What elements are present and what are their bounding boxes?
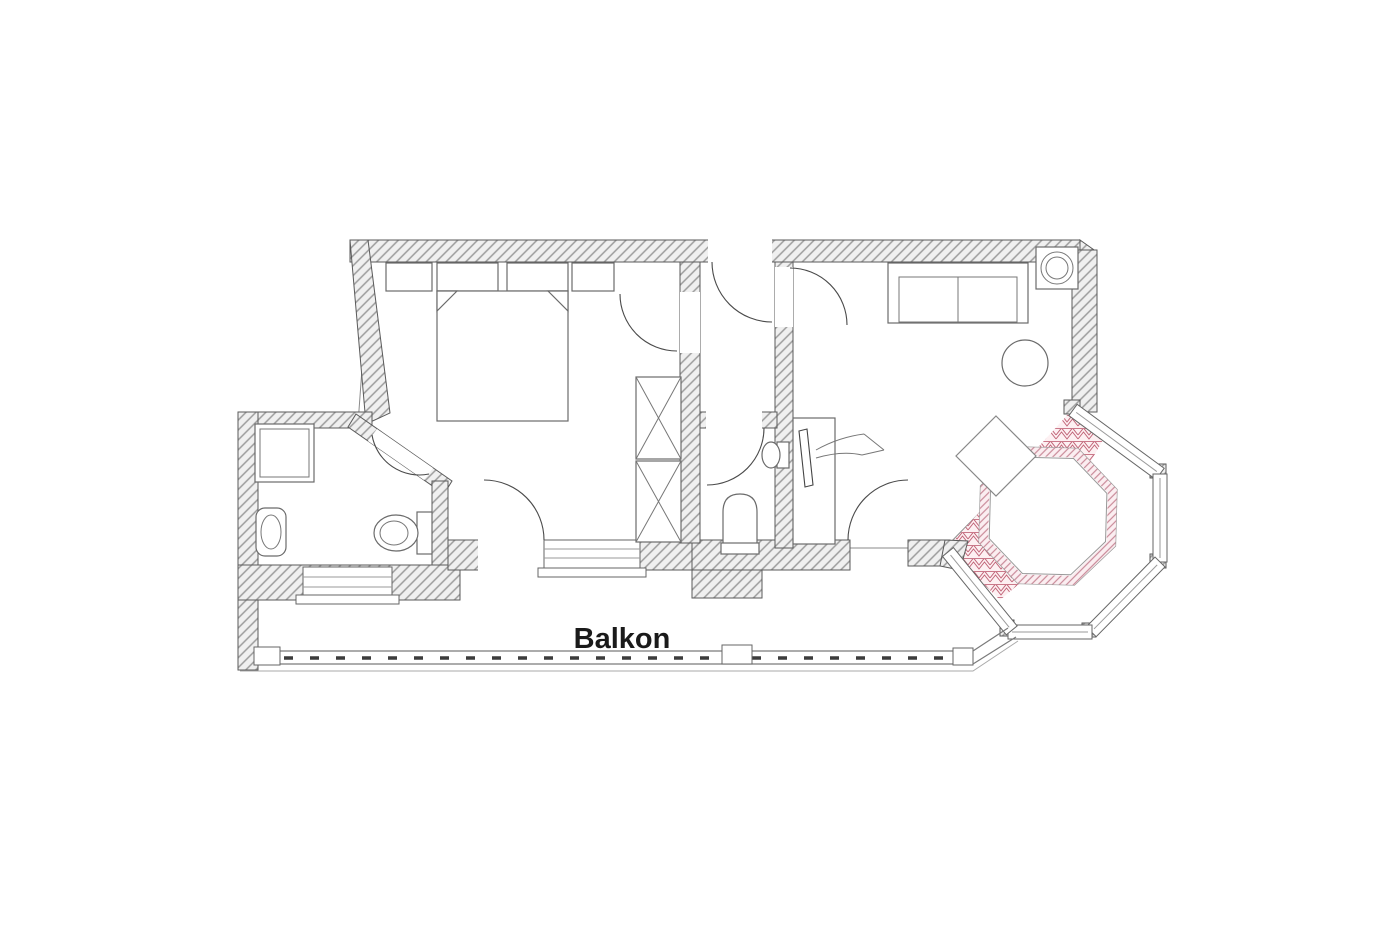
round-table [1002, 340, 1048, 386]
bathroom-toilet [374, 512, 432, 554]
nightstand-right [572, 263, 614, 291]
wc-toilet [721, 494, 759, 554]
balcony: Balkon [240, 623, 1018, 671]
pillow-left [437, 263, 498, 291]
pillow-right [507, 263, 568, 291]
railing-post-left [254, 647, 280, 665]
double-bed [437, 291, 568, 421]
door-arc-living [790, 268, 847, 325]
bathroom-window [296, 567, 399, 604]
door-arc-entrance [712, 262, 772, 322]
railing-post-right [953, 648, 973, 665]
bathroom-furniture [255, 424, 432, 556]
door-arc-living-balcony [848, 480, 908, 540]
railing-diag-2 [973, 637, 1016, 664]
wall-south-notch [692, 570, 762, 598]
railing-diag-1 [973, 628, 1008, 651]
balcony-label: Balkon [574, 623, 671, 655]
railing-post-mid [722, 645, 752, 664]
door-arc-bedroom [620, 294, 677, 351]
tv-unit [793, 418, 884, 544]
nightstand-left [386, 263, 432, 291]
opening-bedroom-balcony [478, 538, 546, 572]
corner-column [1036, 247, 1078, 289]
floor-plan: Balkon [0, 0, 1400, 933]
shower [255, 424, 314, 482]
wardrobe [636, 377, 681, 542]
opening-wc [706, 410, 762, 430]
opening-living [775, 267, 793, 327]
sofa [888, 263, 1028, 323]
door-arc-wc [707, 428, 764, 485]
washbasin [256, 508, 286, 556]
bay-window-se [1086, 557, 1165, 637]
opening-entrance [708, 238, 772, 264]
bedroom-furniture [386, 263, 681, 542]
opening-bathroom [368, 429, 433, 480]
door-arc-bedroom-balcony [484, 480, 544, 540]
wc-washbasin [762, 442, 789, 468]
bedroom-window [538, 540, 646, 577]
wall-west-slanted [350, 240, 390, 424]
opening-bedroom [680, 292, 700, 353]
bay-window-east [1153, 474, 1167, 562]
bay-window-south [1008, 625, 1092, 639]
floor-plan-page: Balkon [0, 0, 1400, 933]
